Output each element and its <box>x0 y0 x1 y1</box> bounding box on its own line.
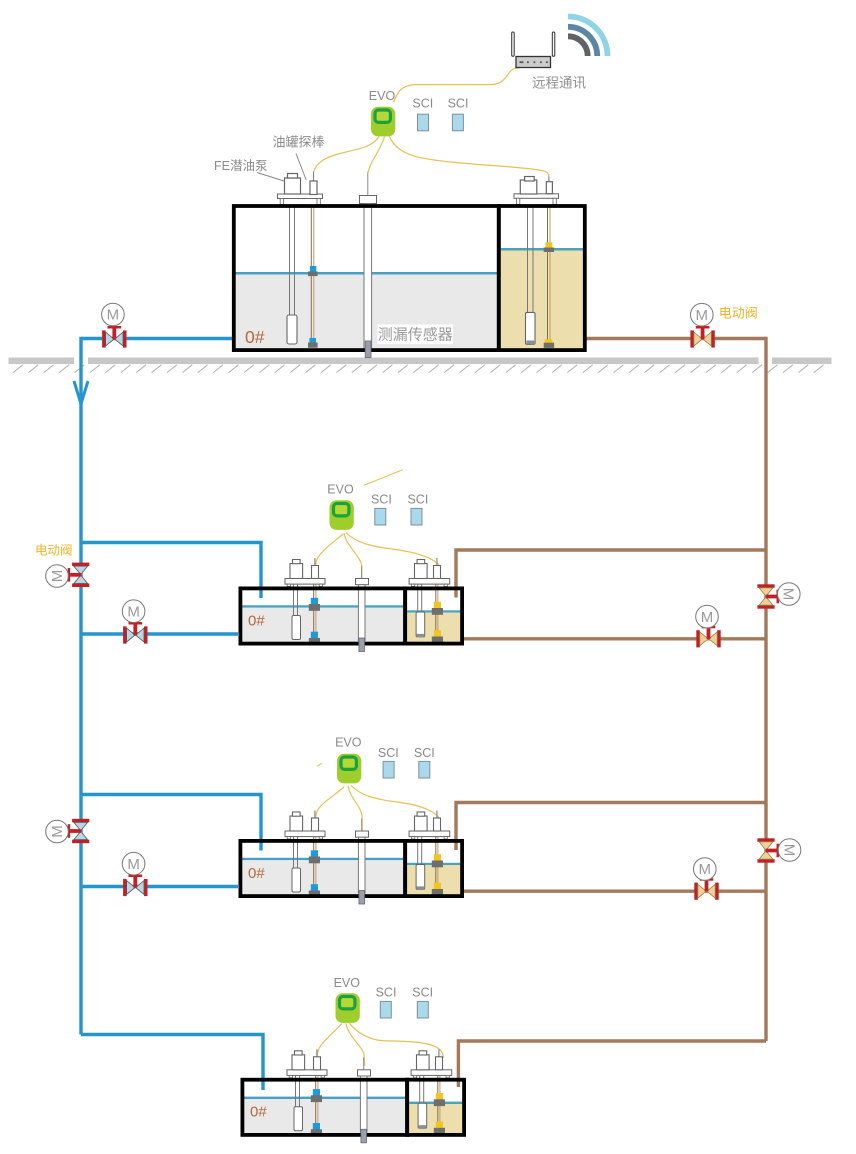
svg-text:0#: 0# <box>250 1104 267 1121</box>
svg-text:M: M <box>780 844 797 857</box>
svg-text:SCI: SCI <box>407 493 428 507</box>
svg-text:SCI: SCI <box>378 746 399 760</box>
svg-text:SCI: SCI <box>376 986 397 1000</box>
svg-text:电动阀: 电动阀 <box>719 306 758 321</box>
svg-text:SCI: SCI <box>448 97 469 111</box>
svg-text:SCI: SCI <box>371 493 392 507</box>
svg-text:0#: 0# <box>245 327 265 347</box>
svg-text:SCI: SCI <box>412 97 433 111</box>
svg-text:M: M <box>696 307 709 324</box>
svg-text:远程通讯: 远程通讯 <box>532 76 586 91</box>
svg-text:0#: 0# <box>248 865 265 882</box>
svg-text:油罐探棒: 油罐探棒 <box>273 135 325 150</box>
svg-text:电动阀: 电动阀 <box>35 544 73 558</box>
svg-text:测漏传感器: 测漏传感器 <box>378 327 453 344</box>
svg-text:SCI: SCI <box>412 986 433 1000</box>
svg-text:SCI: SCI <box>414 746 435 760</box>
svg-text:M: M <box>127 856 140 873</box>
svg-text:EVO: EVO <box>334 976 361 990</box>
svg-text:FE潜油泵: FE潜油泵 <box>214 159 267 173</box>
svg-text:0#: 0# <box>248 613 265 630</box>
svg-text:EVO: EVO <box>369 89 396 103</box>
svg-text:EVO: EVO <box>335 736 362 750</box>
svg-text:M: M <box>127 603 140 620</box>
svg-text:M: M <box>107 307 120 324</box>
svg-text:M: M <box>49 570 66 583</box>
svg-text:M: M <box>780 588 797 601</box>
svg-text:M: M <box>701 609 714 626</box>
svg-text:EVO: EVO <box>327 483 354 497</box>
svg-text:M: M <box>49 825 66 838</box>
svg-text:M: M <box>699 861 712 878</box>
